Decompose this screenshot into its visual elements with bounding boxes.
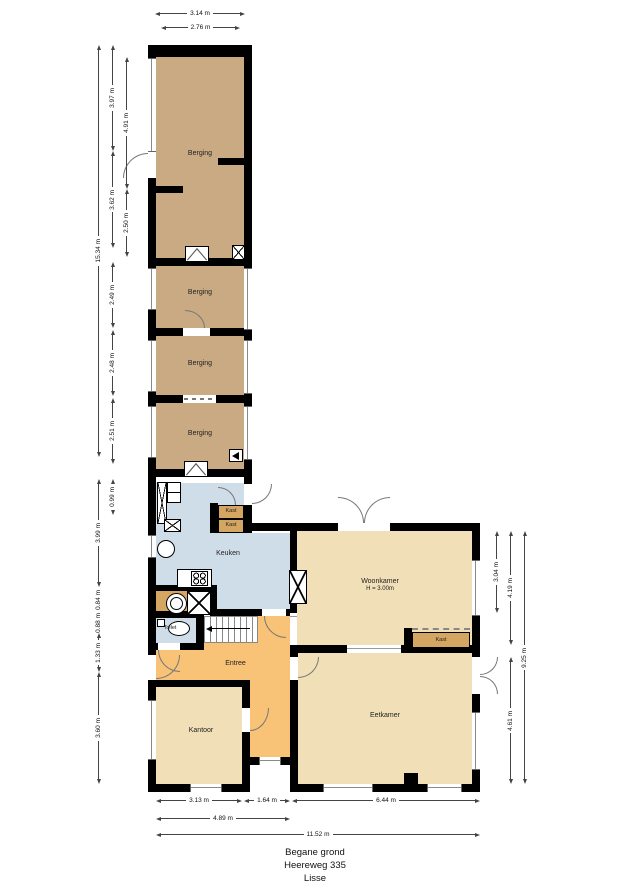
dim-left-3-60: 3.60 m — [95, 672, 102, 784]
dim-left-2-49: 2.49 m — [109, 262, 116, 328]
door-leaf-icon — [185, 462, 207, 476]
door-arc-eetkamer-ext-bottom — [480, 676, 498, 694]
dim-bottom-6-44: 6.44 m — [292, 797, 480, 804]
window-berging4-right — [244, 406, 252, 460]
dim-left-3-97: 3.97 m — [109, 45, 116, 151]
dim-left-0-88: 0.88 m — [95, 610, 102, 633]
dim-left-4-91: 4.91 m — [123, 57, 130, 189]
dim-right-9-25: 9.25 m — [521, 531, 528, 784]
dim-label: 3.62 m — [109, 187, 116, 213]
plan-title-city: Lisse — [215, 873, 415, 886]
label-eetkamer: Eetkamer — [345, 712, 425, 720]
label-kantoor: Kantoor — [162, 727, 240, 735]
counter-shelf-icon — [167, 482, 181, 503]
door-gap-front — [148, 655, 156, 680]
door-gap-entree-eetkamer — [290, 657, 298, 680]
label-toilet: Toilet — [157, 625, 183, 632]
dim-label: 4.89 m — [210, 815, 236, 822]
door-berging1-2 — [185, 246, 209, 262]
door-gap-eetkamer-ext — [472, 657, 480, 694]
plan-title-address: Heereweg 335 — [215, 860, 415, 873]
dim-label: 2.76 m — [188, 24, 214, 31]
dim-label: 1.33 m — [95, 640, 102, 666]
dim-left-1-33: 1.33 m — [95, 633, 102, 672]
door-berging4-keuken — [184, 461, 208, 477]
label-berging-1: Berging — [160, 150, 240, 158]
dim-left-3-99: 3.99 m — [95, 479, 102, 587]
door-arc-keuken-ext — [252, 484, 272, 504]
wall-washok-right — [210, 585, 217, 616]
door-gap-keuken-ext — [244, 484, 252, 505]
wall-porch-jamb-left — [250, 757, 259, 765]
window-woonkamer-right — [472, 560, 480, 616]
kast-dashed-line — [412, 628, 470, 630]
dim-left-15-34: 15.34 m — [95, 45, 102, 457]
dim-label: 4.19 m — [507, 575, 514, 601]
dim-right-3-04: 3.04 m — [493, 531, 500, 613]
dim-right-4-61: 4.61 m — [507, 657, 514, 784]
plan-title-floor: Begane grond — [215, 847, 415, 860]
opening-berging3-4 — [183, 395, 216, 403]
room-keuken-area3 — [244, 533, 290, 616]
window-keuken-left — [148, 535, 156, 558]
dim-left-2-51: 2.51 m — [109, 398, 116, 464]
dim-left-3-62: 3.62 m — [109, 151, 116, 248]
stairs-arrow — [212, 628, 250, 629]
dim-label: 0.88 m — [95, 610, 102, 636]
door-gap-berging1-ext — [148, 152, 156, 178]
dim-label: 3.14 m — [187, 10, 213, 17]
wall-chimney-bump — [404, 773, 418, 784]
door-gap-berging2-3 — [183, 328, 210, 336]
dim-left-0-99: 0.99 m — [109, 479, 116, 509]
flue-icon — [232, 245, 245, 260]
stairs-arrow-head — [206, 626, 212, 632]
dim-label: 3.99 m — [95, 520, 102, 546]
window-eetkamer-bottom-1 — [323, 784, 373, 792]
label-kast-1: Kast — [218, 508, 244, 515]
dim-bottom-1-64: 1.64 m — [244, 797, 290, 804]
dim-label: 9.25 m — [521, 645, 528, 671]
window-kantoor-bottom — [190, 784, 222, 792]
wall-kast-stub — [210, 503, 218, 533]
dim-label: 3.60 m — [95, 715, 102, 741]
wall-kantoor-right — [242, 680, 250, 792]
dim-right-4-19: 4.19 m — [507, 531, 514, 645]
window-berging4-left — [148, 406, 156, 458]
label-kast-woonkamer: Kast — [412, 637, 470, 644]
label-kast-2: Kast — [218, 522, 244, 529]
wall-kast-woonkamer — [404, 628, 412, 653]
wall-wing-top — [148, 45, 252, 57]
dim-label: 6.44 m — [373, 797, 399, 804]
window-berging3-left — [148, 340, 156, 392]
cabinet-icon — [164, 519, 181, 532]
label-berging-2: Berging — [160, 289, 240, 297]
door-gap-toilet — [158, 643, 180, 650]
dim-top-outer: 3.14 m — [155, 10, 245, 17]
wall-stub-left — [148, 186, 183, 193]
door-leaf-icon — [186, 247, 208, 261]
door-gap-kantoor — [242, 708, 250, 732]
wall-porch-jamb-right — [281, 757, 290, 765]
dim-label: 11.52 m — [304, 831, 333, 838]
chimney-icon — [289, 570, 307, 604]
dim-label: 3.04 m — [493, 559, 500, 585]
tall-cabinet-icon — [157, 482, 167, 524]
window-kantoor-left — [148, 700, 156, 760]
window-berging2-right — [244, 268, 252, 330]
label-berging-3: Berging — [160, 360, 240, 368]
label-woonkamer-height: H = 3.00m — [340, 586, 420, 593]
dim-label: 4.61 m — [507, 708, 514, 734]
porch-gap-bottom — [250, 784, 290, 792]
window-berging2-left — [148, 268, 156, 310]
floor-plan: Berging Berging Berging Berging Keuken K… — [0, 0, 629, 890]
opening-entree-woonkamer — [290, 613, 297, 645]
dim-label: 0.84 m — [95, 587, 102, 613]
label-woonkamer: Woonkamer H = 3.00m — [340, 578, 420, 594]
dim-label: 2.51 m — [109, 418, 116, 444]
window-berging3-right — [244, 340, 252, 394]
door-arc-eetkamer-ext-top — [480, 657, 498, 675]
washing-machine-icon — [166, 593, 187, 614]
dim-label: 3.97 m — [109, 85, 116, 111]
plan-title-block: Begane grond Heereweg 335 Lisse — [215, 847, 415, 885]
door-arc-french-left — [338, 497, 364, 523]
dim-bottom-3-13: 3.13 m — [156, 797, 242, 804]
dim-left-2-50: 2.50 m — [123, 189, 130, 257]
label-entree: Entree — [198, 660, 273, 668]
label-woonkamer-name: Woonkamer — [340, 578, 420, 586]
dim-bottom-11-52: 11.52 m — [156, 831, 480, 838]
dim-label: 0.99 m — [109, 484, 116, 510]
dim-label: 4.91 m — [123, 110, 130, 136]
door-gap-french — [338, 523, 390, 531]
window-eetkamer-right — [472, 712, 480, 770]
dim-top-inner: 2.76 m — [161, 24, 240, 31]
door-arc-french-right — [364, 497, 390, 523]
dim-label: 3.13 m — [186, 797, 212, 804]
dim-left-2-48: 2.48 m — [109, 330, 116, 396]
label-keuken: Keuken — [188, 550, 268, 558]
dim-bottom-4-89: 4.89 m — [156, 815, 290, 822]
dim-label: 15.34 m — [95, 236, 102, 266]
wall-kantoor-top — [148, 680, 250, 687]
room-kantoor — [156, 687, 242, 784]
window-berging1-left — [148, 58, 156, 152]
dim-label: 2.49 m — [109, 282, 116, 308]
dim-left-0-84: 0.84 m — [95, 587, 102, 610]
door-gap-keuken-entree — [262, 609, 286, 616]
washer-xbox-icon — [187, 591, 211, 615]
opening-woonkamer-eetkamer — [347, 645, 401, 653]
dim-label: 2.48 m — [109, 350, 116, 376]
front-door-porch — [259, 757, 281, 765]
stove-icon — [191, 571, 208, 586]
dim-label: 1.64 m — [254, 797, 280, 804]
dim-label: 2.50 m — [123, 210, 130, 236]
label-berging-4: Berging — [160, 430, 240, 438]
wall-stub-right — [218, 158, 252, 165]
hatch-arrow-icon — [229, 449, 243, 462]
staircase — [204, 616, 258, 643]
sink-icon — [157, 540, 175, 558]
window-eetkamer-bottom-2 — [427, 784, 462, 792]
